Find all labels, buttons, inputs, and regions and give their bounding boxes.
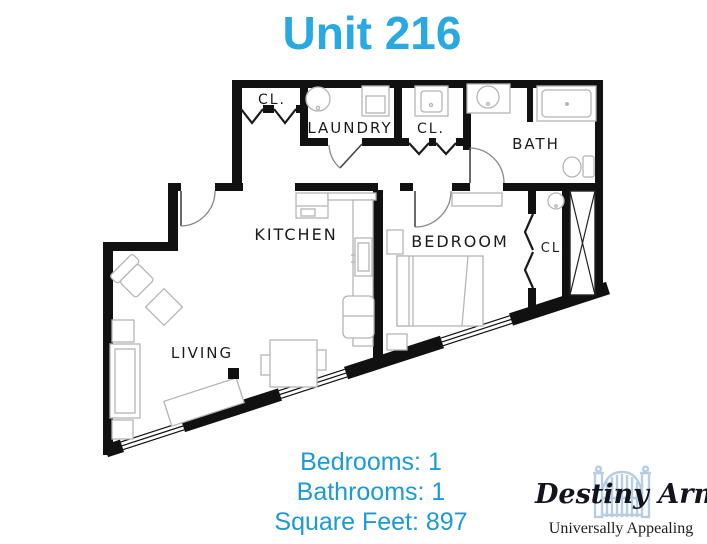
- label-closet-top: CL.: [258, 92, 286, 108]
- kitchen-counters: [296, 193, 376, 346]
- square-feet-info: Square Feet: 897: [274, 507, 467, 537]
- nightstand: [387, 230, 403, 254]
- end-table: [112, 320, 134, 342]
- logo-name: Destiny Arms: [535, 479, 707, 510]
- logo: Destiny Arms Universally Appealing: [535, 463, 707, 543]
- bed: [397, 256, 483, 326]
- laundry-door: [329, 144, 362, 168]
- bedroom-furniture: [387, 193, 502, 350]
- dryer-icon: [362, 86, 389, 116]
- label-laundry: LAUNDRY: [307, 119, 392, 137]
- side-table: [146, 289, 183, 326]
- utility-shaft: [570, 191, 595, 295]
- armchair: [110, 254, 157, 301]
- washer-icon: [306, 87, 330, 111]
- nightstand: [387, 334, 407, 350]
- column: [228, 368, 239, 379]
- end-table: [112, 420, 133, 439]
- bath-sink-icon: [467, 84, 510, 113]
- bedroom-door: [415, 191, 451, 227]
- bathtub-icon: [537, 86, 596, 121]
- toilet-icon: [563, 156, 594, 177]
- water-heater-icon: [415, 86, 448, 116]
- label-bedroom: BEDROOM: [411, 232, 509, 251]
- label-kitchen: KITCHEN: [254, 225, 337, 244]
- bathrooms-info: Bathrooms: 1: [274, 477, 467, 507]
- floorplan-page: Unit 216: [0, 0, 707, 544]
- closet-sink-icon: [548, 193, 564, 209]
- dining-set: [261, 340, 326, 387]
- unit-info: Bedrooms: 1 Bathrooms: 1 Square Feet: 89…: [274, 447, 467, 537]
- logo-tagline: Universally Appealing: [535, 520, 707, 538]
- bedrooms-info: Bedrooms: 1: [274, 447, 467, 477]
- label-living: LIVING: [171, 344, 233, 362]
- label-bath: BATH: [512, 135, 560, 153]
- entry-door: [181, 191, 215, 226]
- dresser: [452, 193, 502, 206]
- stove-icon: [343, 296, 374, 338]
- sofa: [110, 344, 140, 418]
- label-closet-bedroom: CL.: [541, 241, 567, 256]
- label-closet-mid: CL.: [417, 121, 445, 137]
- bath-door: [470, 148, 504, 183]
